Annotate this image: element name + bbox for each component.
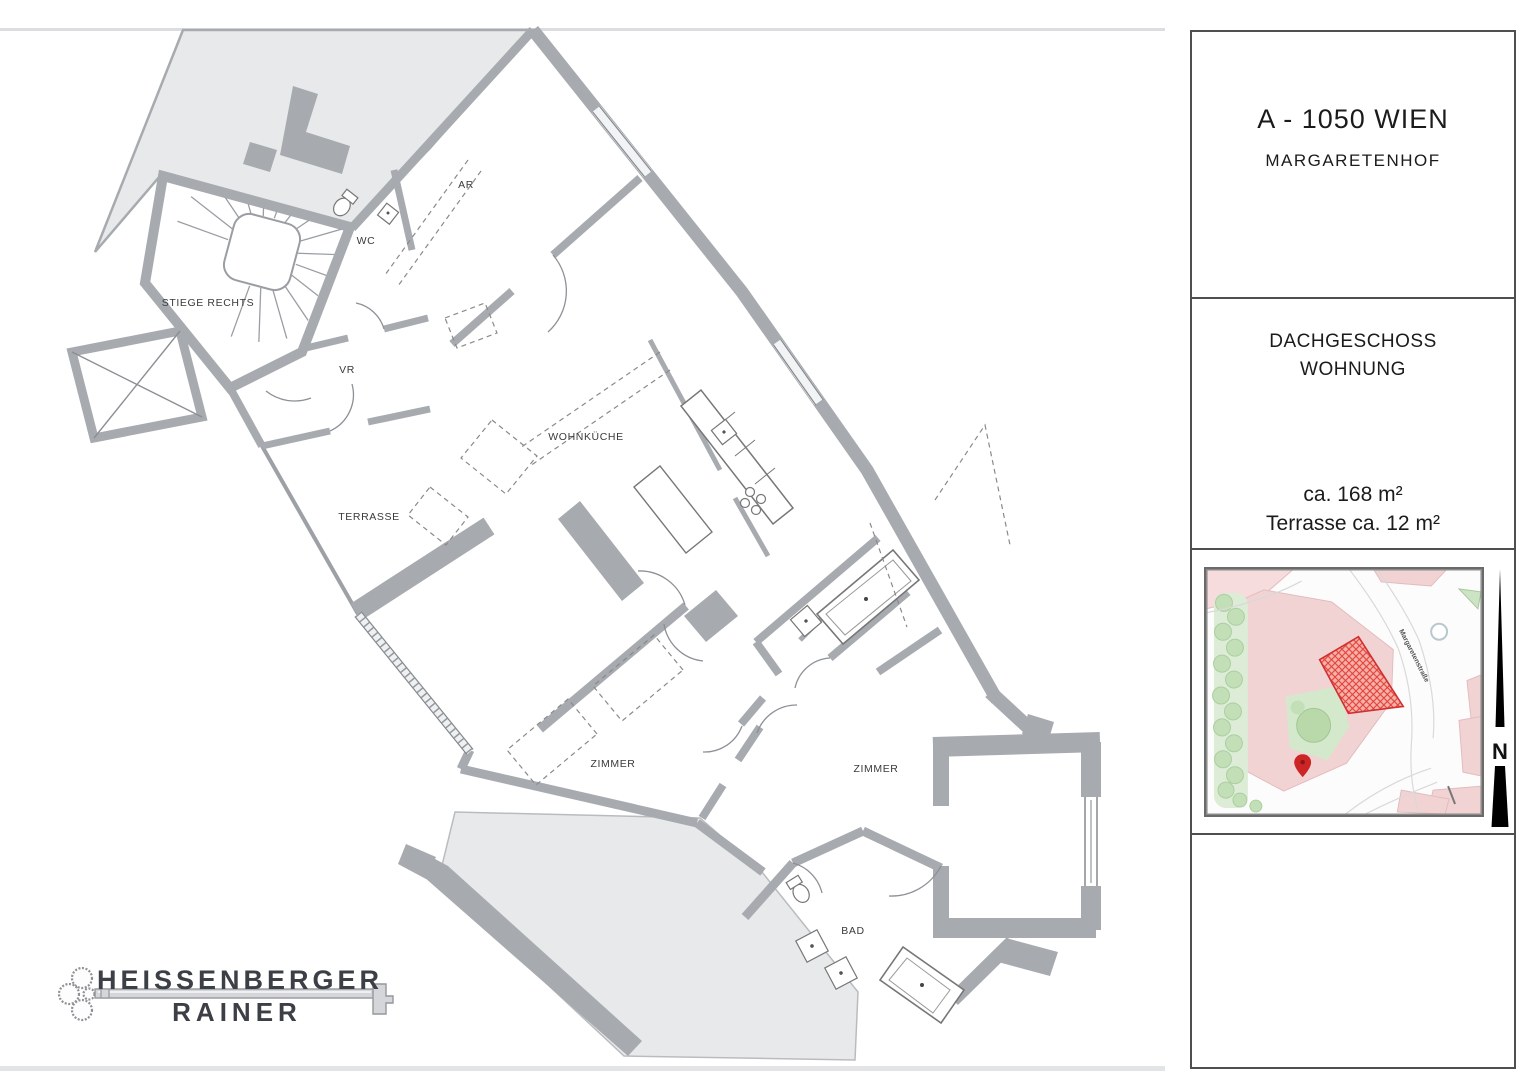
unit-floor: DACHGESCHOSS xyxy=(1192,299,1514,353)
logo-line1: HEISSENBERGER xyxy=(97,965,383,995)
north-label: N xyxy=(1492,739,1508,764)
room-label-wohnkueche: WOHNKÜCHE xyxy=(548,431,623,443)
north-arrow-spike xyxy=(1496,569,1505,727)
elevator-shaft xyxy=(72,331,202,438)
panel-empty-section xyxy=(1192,835,1514,1061)
panel-unit-section: DACHGESCHOSS WOHNUNG ca. 168 m² Terrasse… xyxy=(1192,299,1514,550)
panel-map-section: Margaretenstraße N xyxy=(1192,550,1514,835)
address-building: MARGARETENHOF xyxy=(1192,135,1514,171)
room-label-terrasse: TERRASSE xyxy=(338,511,399,523)
floor-plan-drawing: STIEGE RECHTS WC AR VR WOHNKÜCHE TERRASS… xyxy=(0,0,1190,1089)
north-arrow-shaft xyxy=(1492,766,1509,827)
address-city: A - 1050 WIEN xyxy=(1192,32,1514,135)
dashed-furniture xyxy=(385,160,1010,785)
room-label-wc: WC xyxy=(357,235,376,247)
sheet-bottom-edge xyxy=(0,1066,1165,1071)
room-label-zimmer-1: ZIMMER xyxy=(590,758,635,770)
key-bow xyxy=(59,968,95,1020)
broker-logo: HEISSENBERGER RAINER xyxy=(59,965,393,1027)
location-map: Margaretenstraße xyxy=(1204,567,1484,817)
panel-address-section: A - 1050 WIEN MARGARETENHOF xyxy=(1192,32,1514,299)
area-terrace: Terrasse ca. 12 m² xyxy=(1192,512,1514,536)
info-panel: A - 1050 WIEN MARGARETENHOF DACHGESCHOSS… xyxy=(1190,30,1516,1069)
north-arrow: N xyxy=(1489,567,1511,834)
room-label-ar: AR xyxy=(458,179,474,191)
room-label-bad: BAD xyxy=(841,925,864,937)
room-label-vr: VR xyxy=(339,364,355,376)
unit-type: WOHNUNG xyxy=(1192,353,1514,381)
wall-pillar xyxy=(684,590,738,642)
room-label-stiege: STIEGE RECHTS xyxy=(162,297,254,309)
wall-stub xyxy=(998,938,1058,976)
lower-roof-area xyxy=(398,812,858,1060)
sheet-top-edge xyxy=(0,28,1165,31)
floorplan-sheet: STIEGE RECHTS WC AR VR WOHNKÜCHE TERRASS… xyxy=(0,0,1536,1089)
logo-line2: RAINER xyxy=(172,997,302,1027)
map-roundabout xyxy=(1431,624,1447,640)
area-total: ca. 168 m² xyxy=(1192,483,1514,507)
room-label-zimmer-2: ZIMMER xyxy=(853,763,898,775)
